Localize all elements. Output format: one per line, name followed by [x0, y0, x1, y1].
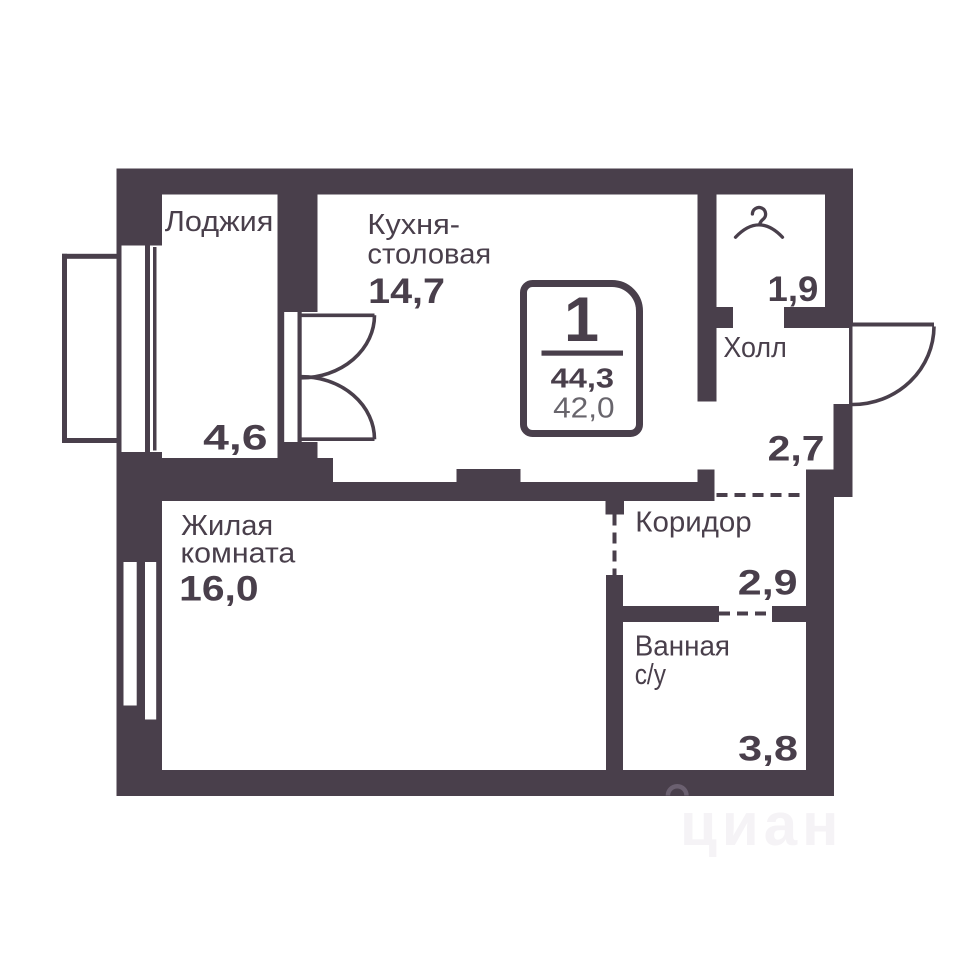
svg-text:4,6: 4,6	[203, 418, 267, 457]
svg-text:14,7: 14,7	[368, 272, 445, 311]
svg-text:1: 1	[564, 285, 599, 355]
svg-text:44,3: 44,3	[551, 363, 614, 394]
svg-text:циан: циан	[680, 791, 843, 858]
svg-text:Коридор: Коридор	[635, 506, 751, 538]
svg-text:2,9: 2,9	[738, 563, 798, 602]
svg-text:2,7: 2,7	[768, 430, 825, 469]
svg-text:3,8: 3,8	[738, 729, 798, 768]
svg-text:Холл: Холл	[723, 332, 786, 364]
svg-text:16,0: 16,0	[179, 570, 258, 609]
svg-text:Ванная: Ванная	[635, 631, 730, 663]
svg-text:Лоджия: Лоджия	[165, 206, 274, 238]
svg-text:42,0: 42,0	[553, 393, 615, 425]
svg-text:комната: комната	[181, 538, 297, 570]
svg-text:1,9: 1,9	[768, 270, 819, 309]
svg-text:Кухня-: Кухня-	[367, 209, 460, 241]
svg-text:столовая: столовая	[367, 239, 491, 271]
svg-text:с/у: с/у	[635, 659, 667, 691]
